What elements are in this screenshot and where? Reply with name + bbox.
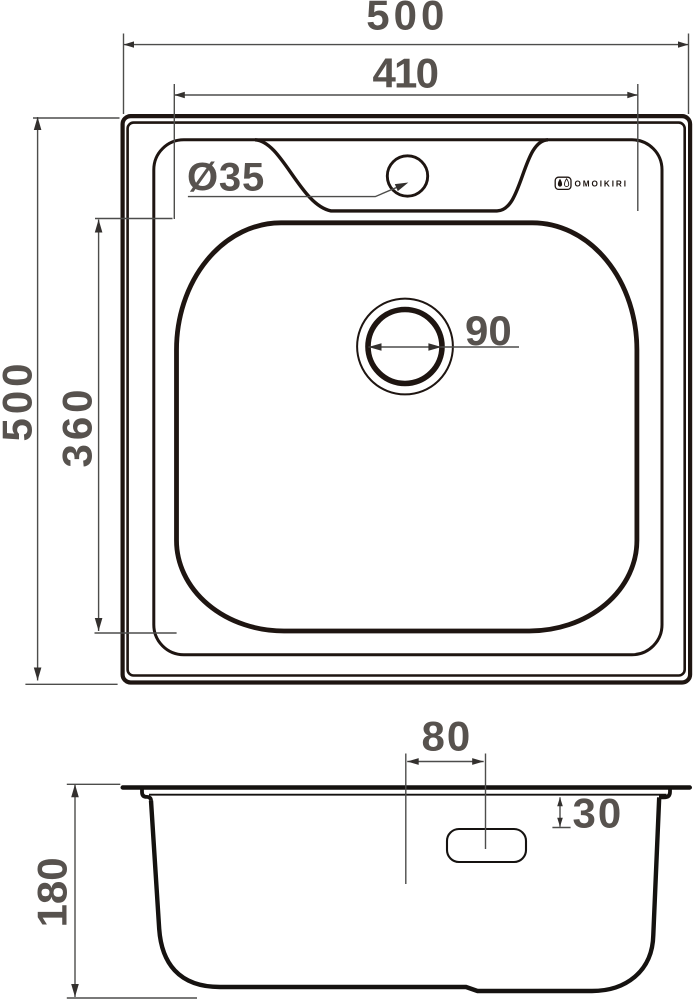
svg-text:OMOIKIRI: OMOIKIRI [575, 180, 628, 189]
svg-text:500: 500 [366, 0, 448, 39]
svg-text:Ø35: Ø35 [187, 155, 265, 199]
svg-text:410: 410 [373, 50, 438, 97]
svg-text:500: 500 [0, 359, 40, 441]
svg-text:360: 360 [54, 385, 101, 467]
svg-text:30: 30 [573, 790, 624, 837]
svg-text:80: 80 [422, 713, 473, 760]
svg-text:180: 180 [28, 857, 75, 927]
